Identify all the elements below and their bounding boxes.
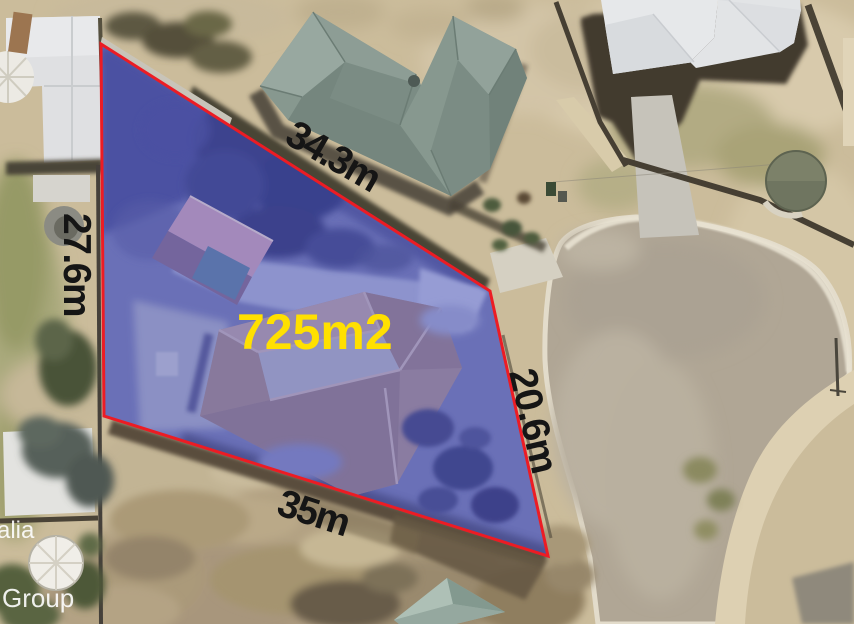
svg-text:alia: alia bbox=[0, 517, 35, 544]
svg-text:725m2: 725m2 bbox=[237, 304, 393, 360]
svg-text:27.6m: 27.6m bbox=[55, 213, 98, 316]
svg-text:Group: Group bbox=[2, 583, 74, 613]
